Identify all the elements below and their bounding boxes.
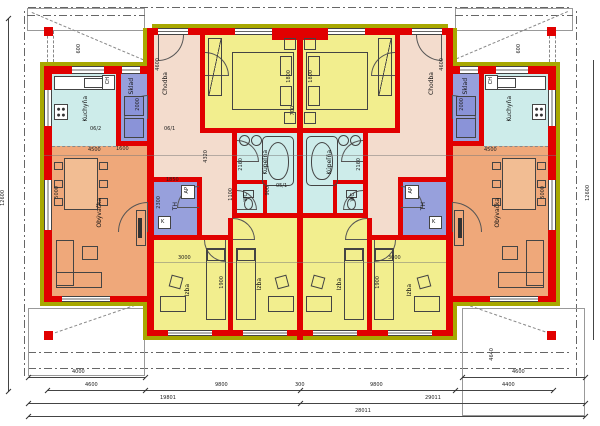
entrance-opening-left (158, 28, 188, 35)
dim-line (28, 416, 585, 417)
room-label-room2-left: Izba (184, 284, 191, 296)
dim-label: 2000 (460, 98, 465, 111)
insulation (446, 302, 560, 306)
tv-icon (138, 218, 142, 238)
shelf-icon (124, 118, 144, 138)
wall (363, 133, 368, 218)
roof-line-left (24, 8, 25, 376)
dim-label: 900 (266, 186, 271, 196)
chair-icon (492, 162, 501, 170)
dim-label: 1100 (229, 188, 234, 201)
wall (446, 141, 484, 146)
window-side-right-2 (548, 180, 556, 230)
wardrobe-icon (378, 38, 392, 96)
nightstand-icon (304, 112, 316, 124)
pillow-icon (308, 86, 320, 106)
room-label-wc-right: WC (350, 193, 357, 201)
wall (479, 70, 484, 146)
shelf-icon (124, 96, 144, 116)
dim-label: 05/1 (276, 184, 287, 189)
dining-table-icon (502, 158, 536, 210)
terrace-outline-bottom-left (28, 308, 145, 376)
dim-label: 4600 (440, 58, 445, 71)
dim-label: 3000 (388, 256, 401, 261)
room-label-boiler-left: K (161, 219, 164, 226)
dim-label: 600 (77, 44, 82, 54)
dim-label: 1600 (116, 147, 129, 152)
dim-label: 06/1 (164, 127, 175, 132)
wall (446, 28, 453, 336)
floor-plan-canvas: Kuchyňa Sklad CH Chodba Kúpeľňa WC TH AP… (0, 0, 600, 426)
room-label-fridge-left: CH (105, 77, 112, 84)
dim-label: 2300 (157, 196, 162, 209)
room-label-room2-right: Izba (406, 284, 413, 296)
stove-icon (532, 104, 546, 120)
room-label-room3-left: Izba (256, 278, 263, 290)
room-label-fridge-right: CH (488, 77, 495, 84)
dim-label: 2160 (357, 158, 362, 171)
sink-icon (338, 135, 349, 146)
window-living-left (62, 296, 110, 302)
dim-label-bottom: 300 (295, 383, 305, 388)
dim-chain-rooms (154, 262, 446, 263)
window-storage-left (122, 66, 140, 74)
tv-icon (458, 218, 462, 238)
dim-label-bottom: 9800 (215, 383, 228, 388)
wall (116, 70, 121, 146)
sofa-icon (498, 272, 544, 288)
chair-icon (492, 180, 501, 188)
bathtub-basin-icon (267, 142, 289, 180)
entrance-opening-right (412, 28, 442, 35)
dim-line-right-total (593, 60, 594, 340)
desk-icon (268, 296, 294, 312)
window-room-4 (388, 330, 432, 336)
nightstand-icon (284, 38, 296, 50)
wall (200, 35, 205, 133)
porch-post (44, 27, 53, 36)
wall (367, 218, 372, 336)
dim-label-bottom: 29011 (425, 396, 441, 401)
room-label-storage-right: Sklad (462, 78, 469, 94)
pillow-icon (280, 86, 292, 106)
room-label-living-left: Obývačka (96, 198, 103, 228)
room-label-tech-right: TH (420, 202, 427, 210)
room-label-bath-right: Kúpeľňa (326, 150, 333, 175)
dim-label-left-total: 12600 (1, 190, 6, 206)
dim-label: 1900 (220, 276, 225, 289)
sink-icon (251, 135, 262, 146)
dim-tick (6, 389, 12, 395)
window-kitchen-left (72, 66, 104, 74)
kitchen-sink-icon (84, 78, 104, 88)
dining-table-icon (64, 158, 98, 210)
pillow-icon (237, 249, 255, 261)
window-bedroom-right (328, 28, 365, 35)
dim-label: 1900 (376, 276, 381, 289)
dim-label: 4600 (156, 58, 161, 71)
dim-label: 700 (291, 106, 296, 116)
window-room-3 (313, 330, 357, 336)
sofa-icon (56, 272, 102, 288)
dim-label: 4320 (204, 150, 209, 163)
dim-label-right-porch: 4640 (490, 348, 495, 361)
room-label-tech-left: TH (172, 202, 179, 210)
room-label-hall-right: Chodba (428, 72, 435, 95)
room-label-kitchen-right: Kuchyňa (506, 96, 513, 122)
wall (200, 128, 303, 133)
dim-line (462, 377, 585, 378)
sink-icon (239, 135, 250, 146)
dim-label: 2160 (239, 158, 244, 171)
dim-label: 1800 (287, 70, 292, 83)
nightstand-icon (304, 38, 316, 50)
porch-axis-top-left (27, 15, 145, 16)
room-label-living-right: Obývačka (494, 198, 501, 228)
coffee-table-icon (82, 246, 98, 260)
dim-chain-horizontal (44, 155, 556, 156)
pillow-icon (207, 249, 225, 261)
dim-label: 2000 (136, 98, 141, 111)
chair-icon (54, 198, 63, 206)
window-room-2 (243, 330, 287, 336)
dim-label-bottom: 4000 (72, 370, 85, 375)
window-room-1 (168, 330, 212, 336)
dim-label: 1800 (309, 70, 314, 83)
insulation (40, 302, 154, 306)
pillow-icon (345, 249, 363, 261)
dim-label-bottom: 19801 (160, 396, 176, 401)
room-label-room3-right: Izba (336, 278, 343, 290)
dim-label: 600 (517, 44, 522, 54)
dim-label: 4500 (484, 148, 497, 153)
room-label-kitchen-left: Kuchyňa (82, 96, 89, 122)
dim-line (28, 403, 585, 404)
wall (297, 128, 400, 133)
window-kitchen-right (496, 66, 528, 74)
dim-label-bottom: 4600 (512, 370, 525, 375)
room-label-wc-left: WC (243, 193, 250, 201)
chair-icon (99, 180, 108, 188)
dim-label-bottom: 9800 (370, 383, 383, 388)
porch-post (547, 331, 556, 340)
insulation (293, 336, 457, 340)
sink-icon (350, 135, 361, 146)
wall (297, 213, 368, 218)
insulation (556, 62, 560, 306)
dim-label: 4500 (88, 148, 101, 153)
insulation (453, 302, 457, 340)
stove-icon (54, 104, 68, 120)
window-side-right-1 (548, 90, 556, 126)
wall (232, 213, 303, 218)
room-label-hall-left: Chodba (162, 72, 169, 95)
window-storage-right (460, 66, 478, 74)
dim-label: 3000 (178, 256, 191, 261)
room-label-storage-left: Sklad (128, 78, 135, 94)
desk-icon (306, 296, 332, 312)
window-side-left-2 (44, 180, 52, 230)
wall (147, 28, 154, 336)
dim-label: 06/2 (90, 127, 101, 132)
boiler-box-icon (429, 216, 442, 229)
kitchen-sink-icon (496, 78, 516, 88)
dim-label-bottom: 28011 (355, 409, 371, 414)
dim-line (28, 377, 145, 378)
chair-icon (54, 162, 63, 170)
porch-post (44, 331, 53, 340)
shelf-icon (456, 118, 476, 138)
wall (398, 177, 448, 182)
insulation (143, 336, 307, 340)
post-axis-line (53, 31, 54, 62)
dim-label-right-total: 12600 (586, 185, 591, 201)
desk-icon (414, 296, 440, 312)
room-label-appliance-right: AP (408, 187, 415, 193)
wall (395, 35, 400, 133)
room-label-bath-left: Kúpeľňa (262, 150, 269, 175)
chair-icon (537, 198, 546, 206)
window-living-right (490, 296, 538, 302)
dim-label-bottom: 4400 (502, 383, 515, 388)
boiler-box-icon (158, 216, 171, 229)
dim-label: 5000 (541, 186, 546, 199)
window-side-left-1 (44, 90, 52, 126)
window-bedroom-left (235, 28, 272, 35)
dim-label-bottom: 4600 (85, 383, 98, 388)
porch-post (547, 27, 556, 36)
room-label-boiler-right: K (432, 219, 435, 226)
dim-label: 5000 (55, 186, 60, 199)
chair-icon (99, 162, 108, 170)
desk-icon (160, 296, 186, 312)
coffee-table-icon (502, 246, 518, 260)
chair-icon (537, 162, 546, 170)
wall-center-party (297, 28, 303, 340)
dim-line-left-total (8, 18, 9, 392)
room-label-appliance-left: AP (184, 187, 191, 193)
wardrobe-icon (208, 38, 222, 96)
dim-label: 1850 (166, 178, 179, 183)
kitchen-living-separator (52, 146, 116, 147)
insulation (453, 28, 457, 66)
room-hall-right-branch (368, 133, 400, 240)
